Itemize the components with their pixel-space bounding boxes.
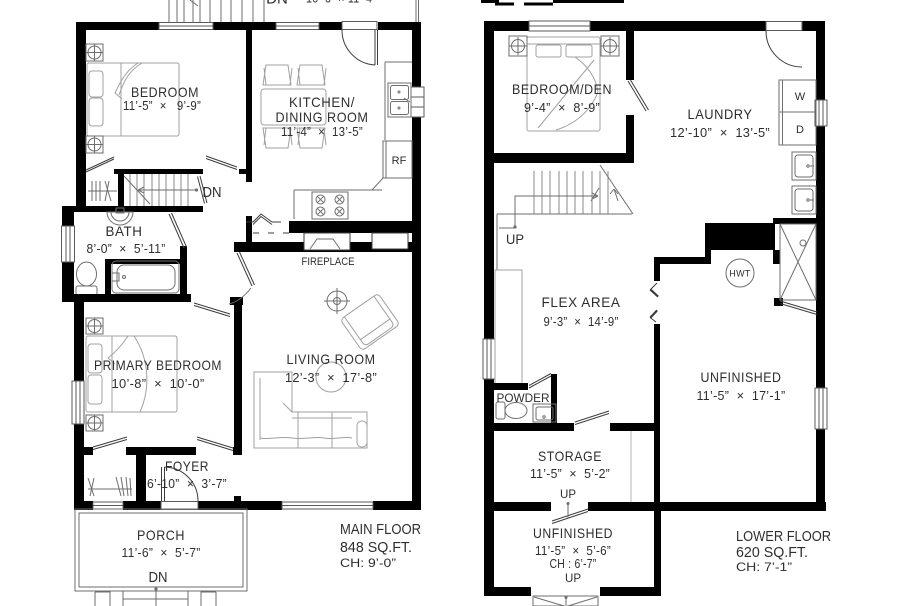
svg-text:MAIN FLOOR: MAIN FLOOR [340,521,421,538]
svg-text:8’-0” × 5’-11”: 8’-0” × 5’-11” [87,241,166,256]
svg-text:UNFINISHED: UNFINISHED [701,369,782,385]
svg-text:9’-3” × 14’-9”: 9’-3” × 14’-9” [544,314,619,329]
svg-text:12’-10” × 13’-5”: 12’-10” × 13’-5” [670,125,770,140]
svg-text:6’-10” × 3’-7”: 6’-10” × 3’-7” [147,476,227,491]
svg-text:CH: 7’-1”: CH: 7’-1” [736,560,792,574]
svg-text:UP: UP [506,231,524,247]
svg-text:FLEX AREA: FLEX AREA [542,294,621,310]
svg-text:HWT: HWT [729,269,751,279]
svg-text:LAUNDRY: LAUNDRY [688,106,753,122]
svg-text:11’-5” × 17’-1”: 11’-5” × 17’-1” [697,388,786,403]
svg-text:11’-6” × 5’-7”: 11’-6” × 5’-7” [122,545,201,560]
svg-text:DN: DN [149,569,168,586]
svg-text:LIVING ROOM: LIVING ROOM [287,351,376,367]
svg-text:DN: DN [203,184,222,201]
svg-text:BEDROOM/DEN: BEDROOM/DEN [512,81,612,97]
svg-text:UP: UP [565,571,581,585]
svg-text:BATH: BATH [106,223,143,239]
svg-text:LOWER FLOOR: LOWER FLOOR [736,528,831,545]
svg-text:W: W [795,91,806,103]
svg-text:12’-3” × 17’-8”: 12’-3” × 17’-8” [285,370,377,385]
svg-text:UP: UP [560,487,576,501]
svg-text:DN: DN [266,0,288,8]
svg-text:DINING ROOM: DINING ROOM [276,109,369,125]
svg-text:RF: RF [392,155,407,167]
svg-text:620 SQ.FT.: 620 SQ.FT. [736,544,808,561]
svg-text:10’-6” × 11’-4”: 10’-6” × 11’-4” [306,0,376,6]
svg-text:10’-8” × 10’-0”: 10’-8” × 10’-0” [112,376,205,391]
svg-text:KITCHEN/: KITCHEN/ [289,94,355,110]
svg-text:PORCH: PORCH [137,527,185,543]
svg-text:CH : 6’-7”: CH : 6’-7” [550,556,597,571]
svg-text:POWDER: POWDER [497,393,550,405]
svg-text:9’-4” × 8’-9”: 9’-4” × 8’-9” [524,100,600,115]
svg-text:11’-5” × 9’-9”: 11’-5” × 9’-9” [123,98,201,113]
svg-text:STORAGE: STORAGE [538,448,602,464]
svg-text:FOYER: FOYER [165,458,209,474]
svg-text:848 SQ.FT.: 848 SQ.FT. [340,539,412,556]
svg-text:CH: 9’-0”: CH: 9’-0” [340,556,396,570]
svg-text:11’-5” × 5’-2”: 11’-5” × 5’-2” [530,466,610,481]
svg-text:D: D [796,124,804,136]
svg-text:PRIMARY BEDROOM: PRIMARY BEDROOM [94,357,222,373]
svg-text:FIREPLACE: FIREPLACE [302,256,355,268]
svg-text:11’-4” × 13’-5”: 11’-4” × 13’-5” [281,124,363,139]
svg-text:UNFINISHED: UNFINISHED [533,525,613,541]
